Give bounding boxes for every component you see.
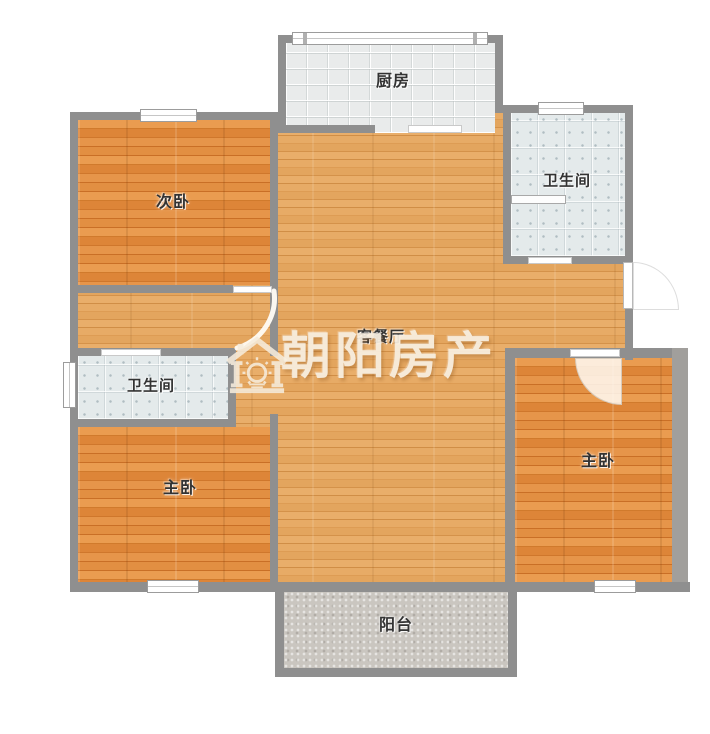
wall-segment <box>270 414 278 582</box>
wall-segment <box>672 348 688 582</box>
wall-segment <box>625 105 633 360</box>
window-mullion <box>473 33 477 44</box>
kitchen-window <box>292 32 488 45</box>
bathroom-top-door-threshold <box>528 257 572 264</box>
room-label-secondary-bedroom: 次卧 <box>156 194 190 210</box>
wall-segment <box>505 348 515 582</box>
watermark-text: 朝阳房产 <box>281 331 497 381</box>
secondary-bedroom-window <box>140 109 197 122</box>
room-label-master-bedroom-right: 主卧 <box>581 453 615 469</box>
kitchen-door-threshold <box>408 125 462 133</box>
master-bedroom-right-window <box>594 580 636 593</box>
wall-segment <box>70 285 233 293</box>
room-label-kitchen: 厨房 <box>376 73 410 89</box>
entry-door-leaf <box>623 262 633 309</box>
wall-segment <box>278 35 286 132</box>
bathroom-mid-window <box>63 362 76 408</box>
wall-segment <box>70 419 236 427</box>
room-label-master-bedroom-left: 主卧 <box>163 480 197 496</box>
sunrise-house-logo-icon <box>226 336 288 396</box>
wall-segment <box>275 668 517 677</box>
wall-segment <box>275 582 284 677</box>
room-label-balcony: 阳台 <box>379 617 413 633</box>
wall-segment <box>503 105 511 264</box>
bathroom-shelf <box>511 195 566 204</box>
master-bedroom-right-door-threshold <box>570 349 620 357</box>
room-label-bathroom-top: 卫生间 <box>543 174 591 189</box>
floor-plan: 厨房 次卧 卫生间 客餐厅 卫生间 主卧 主卧 阳台 朝阳房产 <box>0 0 710 734</box>
window-mullion <box>303 33 307 44</box>
wall-segment <box>508 582 517 677</box>
master-bedroom-left-floor <box>78 427 270 582</box>
room-label-bathroom-mid: 卫生间 <box>127 379 175 394</box>
bathroom-mid-door-threshold <box>101 349 161 356</box>
entry-door-swing <box>633 262 679 310</box>
wall-segment <box>278 125 375 133</box>
wall-segment <box>495 35 503 113</box>
bathroom-top-window <box>538 102 584 115</box>
master-bedroom-left-window <box>147 580 199 593</box>
